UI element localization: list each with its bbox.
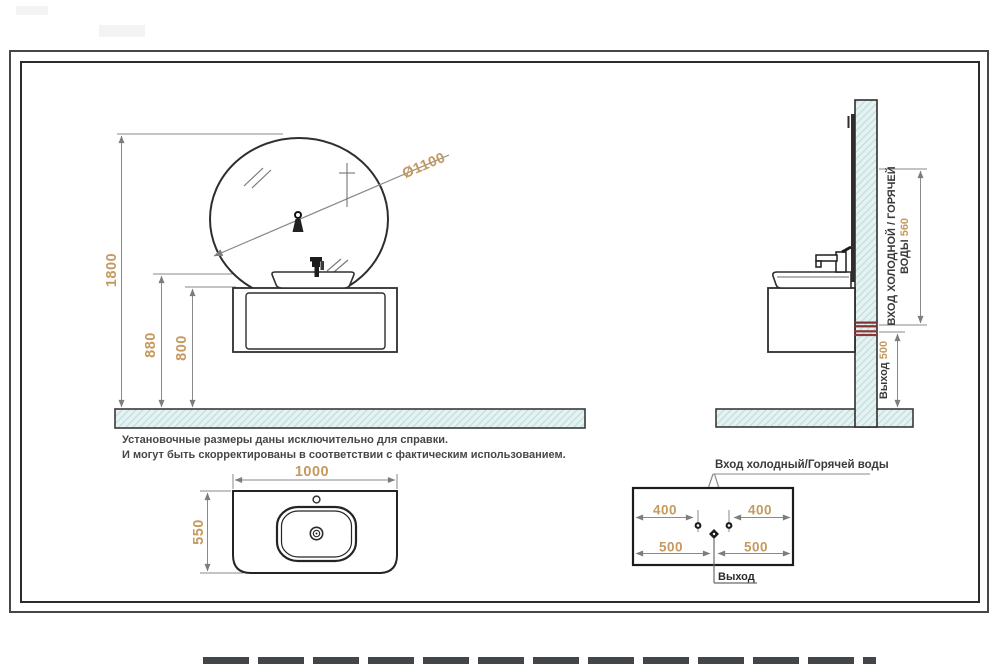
dim-label-560: 560 xyxy=(899,218,911,236)
inlet-cold-icon xyxy=(695,522,702,529)
note-line-1: Установочные размеры даны исключительно … xyxy=(122,434,448,446)
outlet-word: Выход xyxy=(878,362,890,399)
dim-label-500-right: 500 xyxy=(744,540,768,555)
floor-front xyxy=(115,409,585,428)
dim-label-1800: 1800 xyxy=(104,253,120,287)
faucet-hole xyxy=(313,496,320,503)
dim-label-800: 800 xyxy=(174,335,190,361)
dim-label-400-right: 400 xyxy=(748,503,772,518)
schematic-outlet-label: Выход xyxy=(718,571,755,583)
dim-label-500-left: 500 xyxy=(659,540,683,555)
mirror-side xyxy=(851,114,855,282)
front-view xyxy=(115,134,585,428)
note-line-2: И могут быть скорректированы в соответст… xyxy=(122,449,566,461)
plumbing-schematic xyxy=(633,474,870,583)
floor-side xyxy=(716,409,913,427)
sink-front xyxy=(272,272,354,288)
scan-band xyxy=(203,657,876,664)
dim-label-500-side: 500 xyxy=(878,341,890,359)
cabinet-drawer-front xyxy=(246,293,385,349)
cabinet-side xyxy=(768,288,855,352)
dim-label-400-left: 400 xyxy=(653,503,677,518)
top-view xyxy=(200,474,397,573)
inlet-label: ВХОД ХОЛОДНОЙ / ГОРЯЧЕЙ ВОДЫ 560 xyxy=(886,166,912,325)
faucet-side xyxy=(816,247,851,272)
drain-plan xyxy=(310,527,322,539)
sink-side xyxy=(773,272,851,288)
outlet-side-label: Выход 500 xyxy=(878,341,890,399)
dim-label-1000: 1000 xyxy=(295,464,329,480)
inlet-label-line2: ВОДЫ xyxy=(899,239,911,274)
drawing-sheet: 1800 880 800 Ø1100 Установочные размеры … xyxy=(0,0,1000,666)
dim-label-880: 880 xyxy=(143,332,159,358)
inlet-label-line1: ВХОД ХОЛОДНОЙ / ГОРЯЧЕЙ xyxy=(886,166,898,325)
schematic-title: Вход холодный/Горячей воды xyxy=(715,459,889,471)
mirror-bracket xyxy=(848,116,850,128)
dim-label-550: 550 xyxy=(191,519,207,545)
wall-side xyxy=(855,100,877,427)
inlet-hot-icon xyxy=(726,522,733,529)
